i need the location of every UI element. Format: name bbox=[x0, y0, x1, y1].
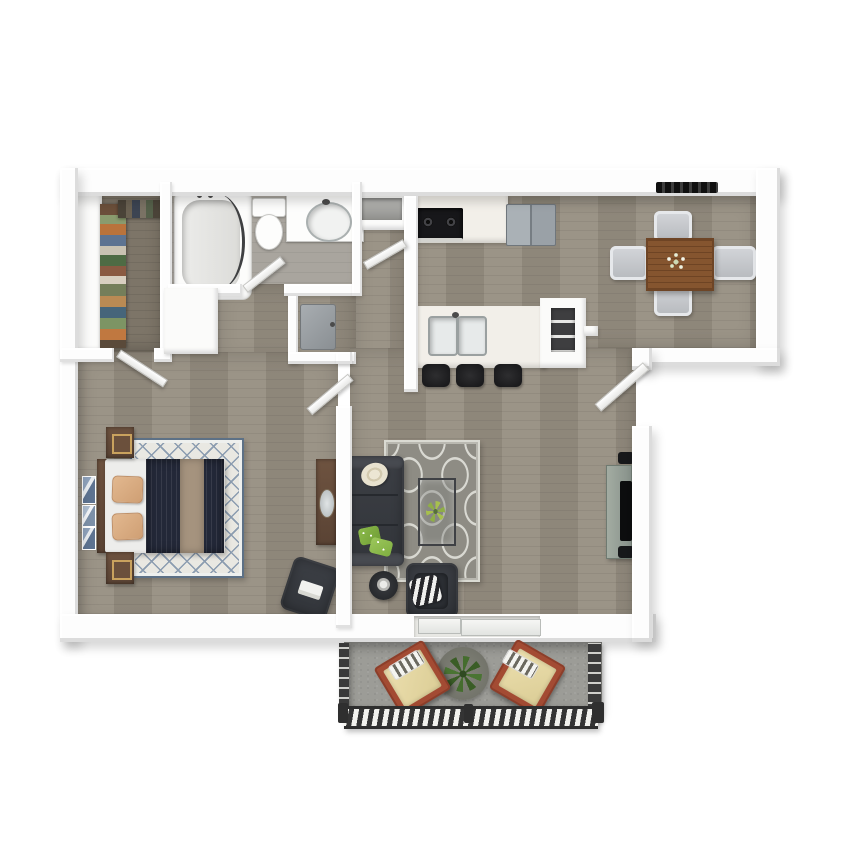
wall-art-1 bbox=[82, 476, 96, 504]
bedroom-living-wall bbox=[336, 406, 352, 628]
bar-stool-3 bbox=[494, 364, 522, 387]
refrigerator bbox=[506, 204, 556, 246]
wall-art-2 bbox=[82, 505, 96, 527]
bath-wall-right bbox=[352, 182, 362, 296]
bed-runner bbox=[180, 459, 204, 553]
water-heater-knob bbox=[330, 322, 335, 327]
stove-burner-right bbox=[446, 217, 456, 227]
island-faucet bbox=[452, 312, 459, 318]
wall-step bbox=[632, 348, 780, 366]
floor-plan bbox=[0, 0, 844, 844]
nightstand-top-inlay bbox=[112, 434, 132, 454]
bath-sink bbox=[306, 202, 352, 242]
sliding-door-panel-2 bbox=[461, 619, 541, 636]
sofa-seam-1 bbox=[352, 494, 398, 496]
dining-chair-left bbox=[610, 246, 648, 280]
wall-right-dining bbox=[756, 168, 780, 366]
bath-faucet bbox=[322, 199, 330, 205]
nightstand-bottom-inlay bbox=[112, 560, 132, 580]
railing-post-right bbox=[592, 702, 604, 723]
dresser-mirror bbox=[319, 489, 335, 518]
bed-pillow-1 bbox=[112, 475, 144, 503]
sofa-arm-bottom bbox=[346, 553, 404, 566]
railing-post-center bbox=[464, 704, 473, 723]
cabinet-shelves bbox=[551, 308, 575, 352]
bar-stool-1 bbox=[422, 364, 450, 387]
closet-clothes-rail bbox=[100, 204, 126, 348]
wall-left bbox=[60, 168, 78, 642]
kitchen-hall-wall bbox=[404, 196, 418, 392]
bed-pillow-2 bbox=[112, 512, 144, 540]
coffee-table-plant bbox=[426, 501, 445, 522]
side-table-vase bbox=[377, 578, 390, 591]
cabinet-ledge bbox=[584, 326, 598, 336]
wall-art-3 bbox=[82, 527, 96, 550]
toilet-bowl bbox=[255, 214, 283, 250]
tv bbox=[620, 481, 632, 541]
sliding-door-panel-1 bbox=[418, 618, 461, 634]
stove-handle bbox=[417, 238, 463, 242]
island-sink-left bbox=[428, 316, 458, 356]
table-centerpiece bbox=[664, 251, 690, 274]
closet-shelf bbox=[76, 182, 102, 352]
bar-stool-2 bbox=[456, 364, 484, 387]
railing-post-left bbox=[338, 703, 348, 723]
dining-chair-right bbox=[712, 246, 756, 280]
bath-wall-bottom-right bbox=[284, 284, 354, 296]
wall-bottom bbox=[60, 614, 656, 642]
wall-right-lower bbox=[632, 426, 652, 642]
water-heater bbox=[300, 304, 336, 350]
pantry-shelf bbox=[362, 198, 402, 220]
closet-clothes-top bbox=[118, 200, 164, 218]
hvac-vent bbox=[656, 182, 718, 193]
linen-closet-block bbox=[164, 288, 218, 354]
stove-burner-left bbox=[423, 217, 433, 227]
island-sink-right bbox=[457, 316, 487, 356]
bedroom-wall-stub bbox=[336, 352, 352, 364]
closet-wall-bottom bbox=[60, 348, 114, 362]
